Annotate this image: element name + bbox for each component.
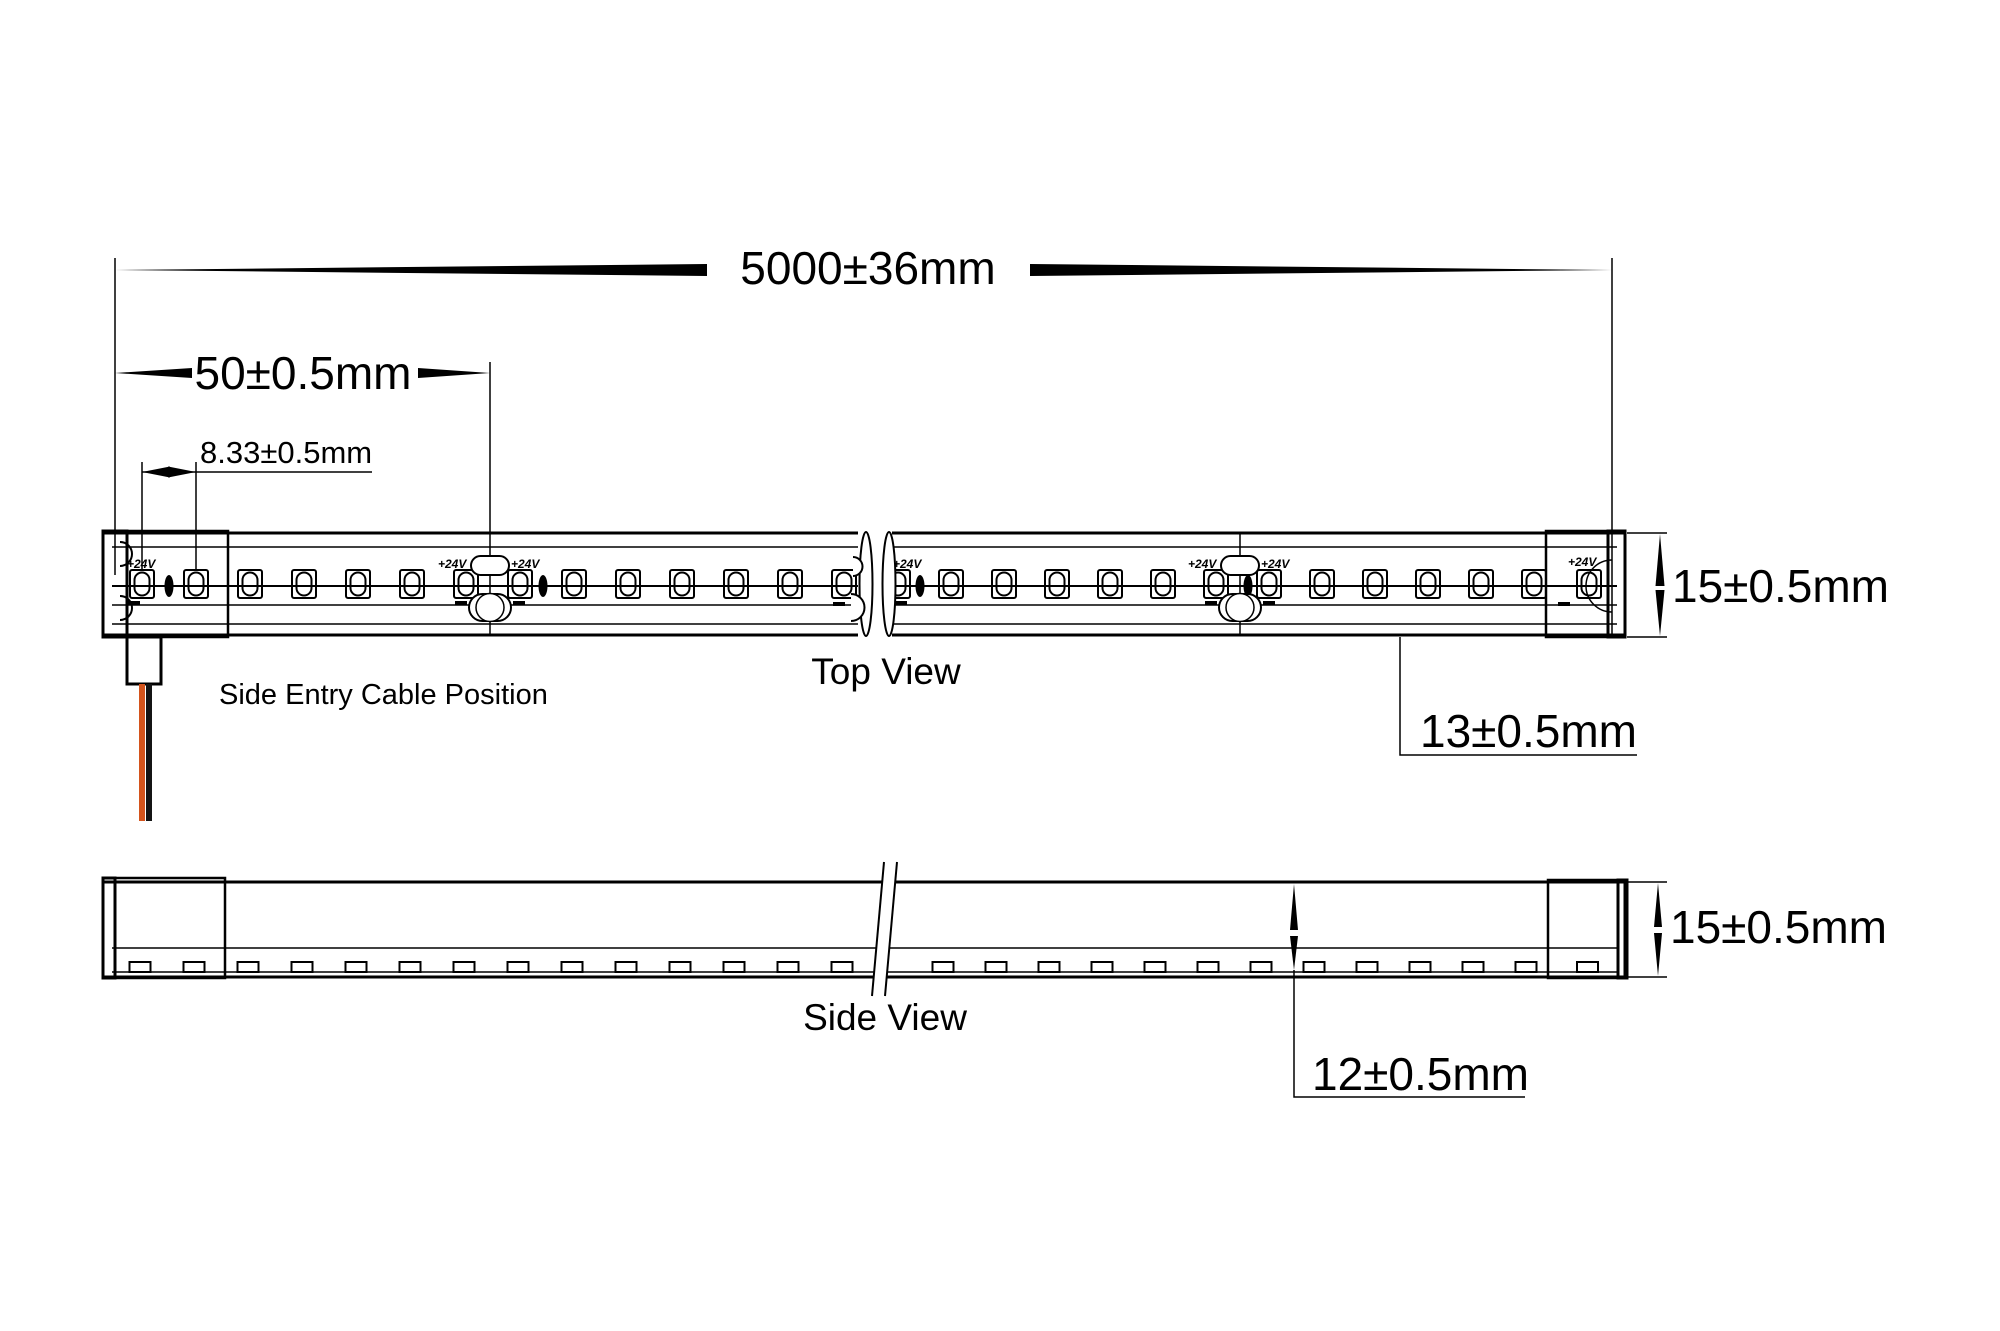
dimension-arrow-right [1030,264,1612,276]
led-chip-side [1304,962,1325,972]
voltage-label: +24V [1188,557,1217,571]
cable-connector [127,637,161,684]
led-chip-side [933,962,954,972]
led-chip-side [1198,962,1219,972]
wire-negative [146,684,152,821]
led-chip-side [832,962,853,972]
led-chip-side [346,962,367,972]
minus-mark [895,601,907,605]
led-chip-side [184,962,205,972]
dimension-arrow-left [142,467,170,478]
minus-mark [1263,601,1275,605]
led-chip-side [1463,962,1484,972]
drawing-canvas: +24V+24V+24V+24V+24V+24V+24V 5000±36mm 5… [0,0,2000,1331]
cable-position-label: Side Entry Cable Position [219,679,548,711]
led-chip-side [130,962,151,972]
led-chip-side [670,962,691,972]
voltage-label: +24V [1568,555,1597,569]
voltage-label: +24V [1261,557,1290,571]
voltage-label: +24V [438,557,467,571]
led-chip-side [292,962,313,972]
minus-mark [513,601,525,605]
cut-increment-value: 50±0.5mm [195,347,412,399]
voltage-label: +24V [511,557,540,571]
dimension-arrow-right [418,368,490,378]
led-chip-side [616,962,637,972]
dimension-arrow-down [1654,933,1662,976]
side-view-label: Side View [803,997,967,1038]
smd-component [916,575,925,597]
dimension-arrow-left [115,264,707,276]
led-chip-side [1251,962,1272,972]
top-view-label: Top View [811,651,961,692]
led-chip-side [1092,962,1113,972]
pcb-width-value: 13±0.5mm [1420,705,1637,757]
minus-mark [833,602,845,606]
smd-component [539,575,548,597]
led-chip-side [1516,962,1537,972]
dimension-width-top: 15±0.5mm [1627,533,1889,637]
led-chip-side [986,962,1007,972]
side-view [103,862,1627,996]
led-chip-side [454,962,475,972]
minus-mark [455,601,467,605]
overall-length-value: 5000±36mm [740,242,995,294]
led-chip-side [1410,962,1431,972]
dimension-arrow-down [1656,590,1665,636]
dimension-arrow-up [1656,534,1665,586]
led-chip-side [778,962,799,972]
led-pitch-value: 8.33±0.5mm [200,435,372,470]
led-chip-side [562,962,583,972]
dimension-height-side: 15±0.5mm [1627,882,1887,977]
dimension-arrow-left [115,368,192,378]
led-chip-side [508,962,529,972]
minus-mark [1205,601,1217,605]
led-chip-side [1039,962,1060,972]
top-view: +24V+24V+24V+24V+24V+24V+24V [103,526,1625,640]
smd-component [165,575,174,597]
led-chip-side [724,962,745,972]
voltage-label: +24V [893,557,922,571]
dimension-arrow-up [1654,883,1662,927]
width-top-value: 15±0.5mm [1672,560,1889,612]
body-height-value: 12±0.5mm [1312,1048,1529,1100]
side-view-body [103,882,1625,977]
dimension-arrow-right [168,467,196,478]
dimension-drawing: +24V+24V+24V+24V+24V+24V+24V 5000±36mm 5… [0,0,2000,1331]
led-chip-side [1577,962,1598,972]
minus-mark [1558,602,1570,606]
led-chip-side [1145,962,1166,972]
minus-mark [128,601,140,605]
height-side-value: 15±0.5mm [1670,901,1887,953]
side-entry-cable [127,637,161,821]
dimension-pcb-width: 13±0.5mm [1400,637,1637,757]
wire-positive [139,684,145,821]
led-chip-side [238,962,259,972]
led-chip-side [1357,962,1378,972]
led-chip-side [400,962,421,972]
